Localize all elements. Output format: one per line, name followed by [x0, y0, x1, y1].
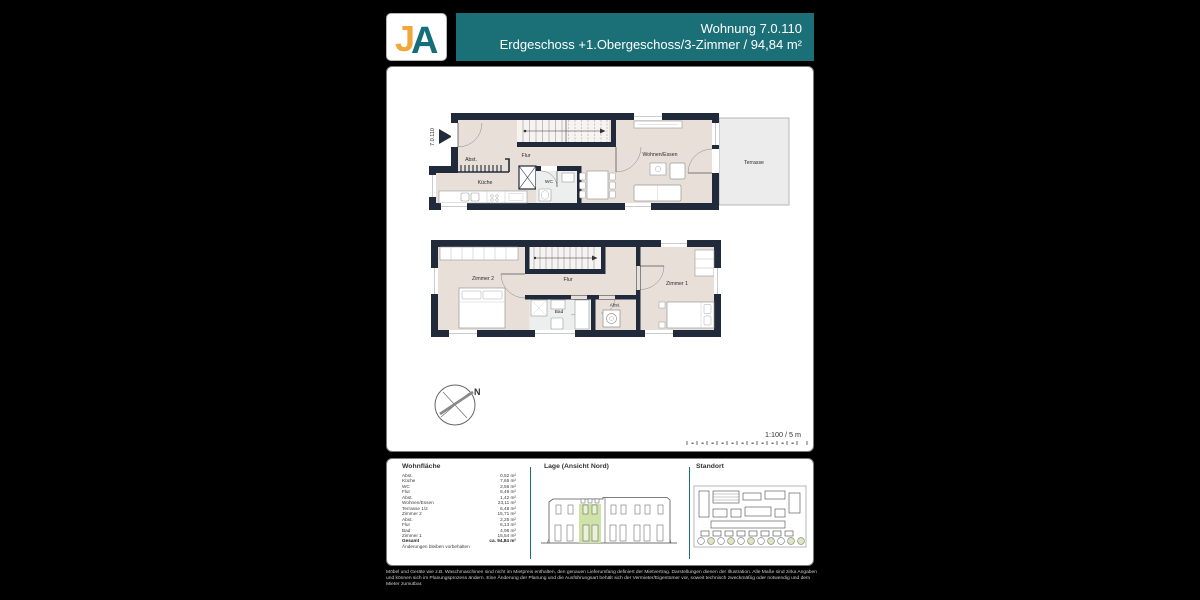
- zimmer1-door-gap: [637, 266, 641, 290]
- terrace-door-gap: [712, 149, 719, 173]
- room-label-bad: Bad: [555, 309, 564, 315]
- standort-title: Standort: [696, 463, 724, 470]
- page: J A Wohnung 7.0.110 Erdgeschoss +1.Oberg…: [0, 0, 1200, 600]
- room-label-wohnen: Wohnen/Essen: [642, 152, 677, 158]
- area-table: Abst.0,52 m² Küche7,65 m² WC2,56 m² Flur…: [402, 473, 516, 550]
- entrance-door-gap: [451, 123, 458, 147]
- bad-abst-wall: [591, 295, 596, 332]
- room-label-zimmer2: Zimmer 2: [472, 276, 494, 282]
- room-label-flur-lower: Flur: [564, 277, 573, 283]
- info-panel: Wohnfläche Abst.0,52 m² Küche7,65 m² WC2…: [386, 458, 814, 566]
- abst-door-gap: [599, 296, 615, 300]
- wc-toilet-bowl: [541, 191, 549, 200]
- company-logo: J A: [386, 13, 447, 61]
- logo-letter-a: A: [411, 20, 438, 58]
- floor-plan-drawing: 7.0.110 Terrasse: [387, 67, 813, 451]
- unit-number-label: 7.0.110: [430, 128, 436, 146]
- compass-n-label: N: [474, 387, 481, 397]
- room-label-terrasse: Terrasse: [744, 160, 764, 166]
- room-label-wc: WC: [545, 179, 554, 185]
- north-indicator: N: [435, 385, 481, 425]
- lower-floor-plan: Zimmer 2 Bad: [431, 240, 721, 337]
- section-divider: [689, 467, 690, 559]
- total-value: ca. 94,84 m²: [489, 538, 516, 543]
- siteplan-trees: [698, 538, 805, 545]
- bad-door-gap: [571, 296, 587, 300]
- room-label-abst-lower: Abst.: [610, 303, 620, 308]
- room-label-kueche: Küche: [478, 180, 493, 186]
- area-table-title: Wohnfläche: [402, 463, 440, 470]
- bed-zimmer2: [459, 288, 505, 328]
- shaft-box: [519, 166, 536, 189]
- siteplan-drawing: [693, 485, 807, 548]
- flur-wohnen-wall: [611, 120, 616, 147]
- dining-set: [580, 171, 616, 199]
- facade-windows: [555, 499, 663, 541]
- room-label-flur-upper: Flur: [522, 153, 531, 159]
- entrance-arrow-icon: [439, 129, 452, 144]
- section-divider: [530, 467, 531, 559]
- table-note: Änderungen bleiben vorbehalten: [402, 544, 516, 550]
- room-label-abst-upper: Abst.: [465, 157, 477, 163]
- scale-text: 1:100 / 5 m: [765, 430, 801, 439]
- elevation-drawing: [539, 489, 679, 551]
- stairs-upper: [517, 120, 609, 142]
- washing-machine-icon: [603, 310, 620, 327]
- stairs-lower: [529, 247, 601, 269]
- disclaimer-text: Möbel und Geräte wie z.B. Waschmaschinen…: [386, 570, 819, 589]
- apartment-subtitle: Erdgeschoss +1.Obergeschoss/3-Zimmer / 9…: [456, 37, 802, 53]
- upper-floor-plan: 7.0.110 Terrasse: [429, 113, 789, 210]
- wc-door-gap: [541, 166, 557, 171]
- room-label-zimmer1: Zimmer 1: [666, 281, 688, 287]
- wall-right-of-stairs: [601, 247, 606, 274]
- wc-sink: [562, 173, 574, 182]
- ja-logo-icon: J A: [391, 16, 443, 58]
- scale-ruler: [687, 441, 807, 445]
- kitchen-counter: [439, 191, 527, 203]
- floorplan-panel: 7.0.110 Terrasse: [386, 66, 814, 452]
- wardrobe-zimmer2: [440, 247, 518, 260]
- apartment-title: Wohnung 7.0.110: [456, 21, 802, 37]
- header-banner: Wohnung 7.0.110 Erdgeschoss +1.Obergesch…: [456, 13, 814, 61]
- wall-below-stairs: [517, 142, 611, 147]
- lage-title: Lage (Ansicht Nord): [544, 463, 609, 470]
- wall-below-stairs-lower: [525, 269, 605, 274]
